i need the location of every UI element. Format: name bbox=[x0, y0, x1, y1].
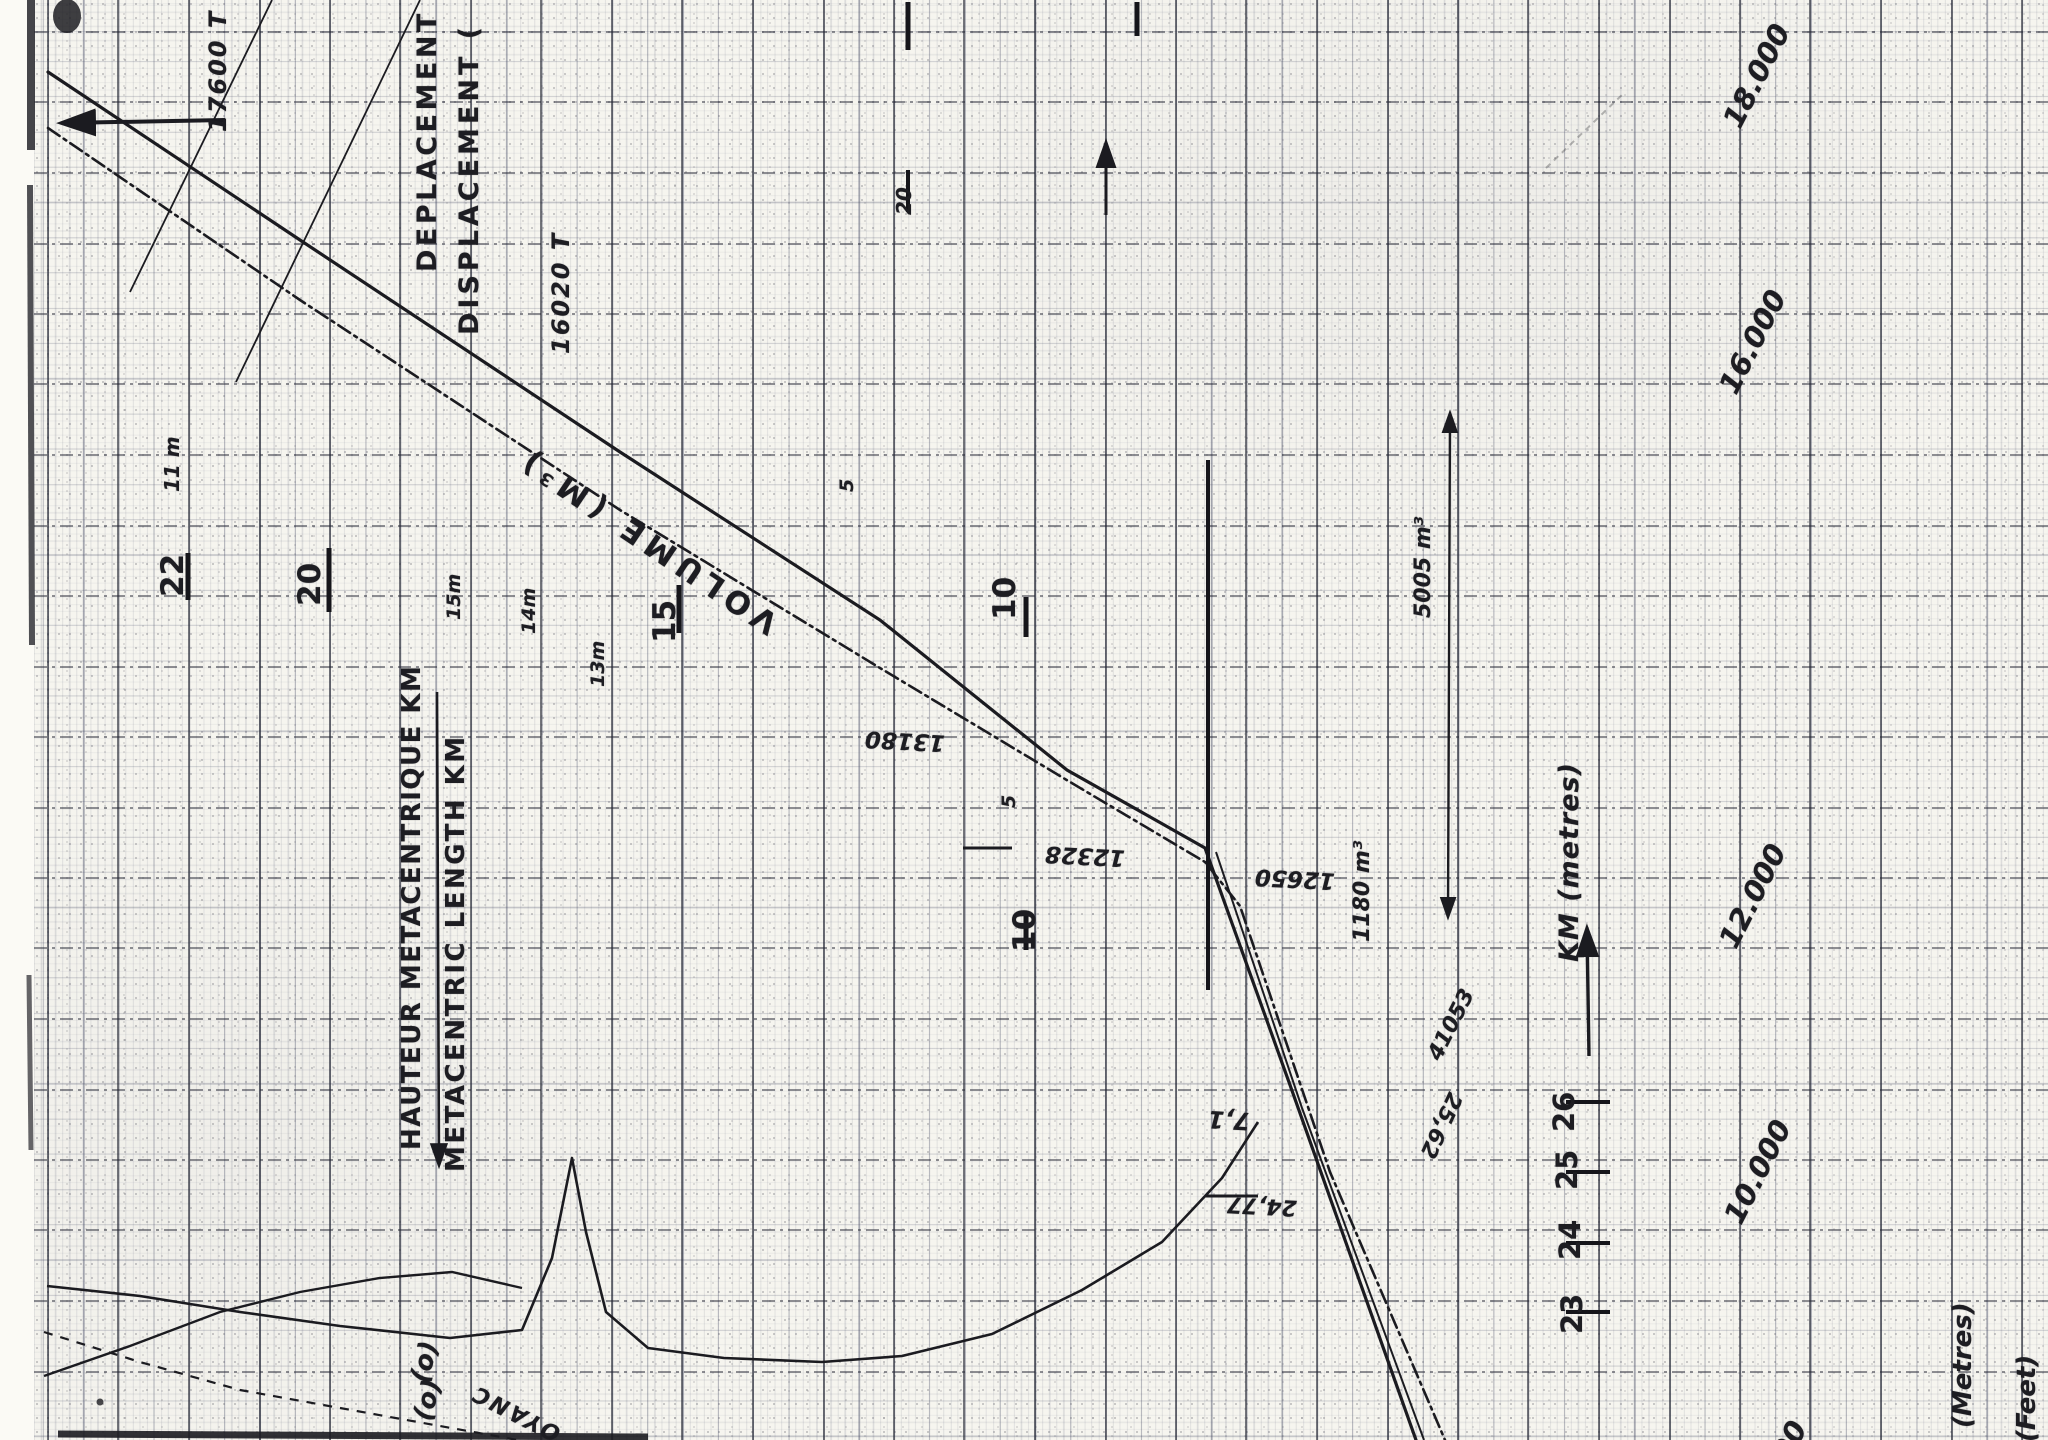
scanned-chart-canvas: DEPLACEMENT EN ( DISPLACEMENT ( VOLUME (… bbox=[0, 0, 2048, 1440]
annotation-12328: 12328 bbox=[1044, 841, 1125, 868]
aux-line-1 bbox=[130, 0, 272, 292]
faint-pencil-line bbox=[1546, 92, 1625, 168]
km-tick-26: 26 bbox=[1550, 1092, 1579, 1132]
annotation-13180: 13180 bbox=[864, 726, 945, 753]
km-tick-24: 24 bbox=[1556, 1220, 1585, 1260]
scan-edge-left-3 bbox=[29, 975, 31, 1150]
annotation-1180m3: 1180 m³ bbox=[1352, 841, 1374, 942]
annotation-11m: 11 m bbox=[162, 436, 182, 492]
metres-tick-10-lower: 10 bbox=[1010, 909, 1041, 952]
draft-mark-13m: 13m bbox=[589, 641, 608, 687]
annotation-7-1: 7,1 bbox=[1207, 1107, 1251, 1133]
dimension-arrow bbox=[1448, 414, 1450, 916]
annotation-12650: 12650 bbox=[1254, 864, 1335, 891]
draft-mark-14m: 14m bbox=[520, 588, 539, 634]
annotation-24-77: 24,77 bbox=[1227, 1192, 1298, 1218]
aux-line-2 bbox=[236, 0, 420, 382]
metres-tick-10: 10 bbox=[990, 577, 1021, 620]
annotation-5005m3: 5005 m³ bbox=[1413, 517, 1435, 618]
title-displacement-en: DISPLACEMENT ( bbox=[456, 23, 483, 335]
displacement-value-17600: 17600 T bbox=[206, 10, 230, 132]
scan-edge-left-2 bbox=[30, 185, 32, 645]
km-metres-axis-label: KM (metres) bbox=[1556, 762, 1583, 962]
metres-tick-15: 15 bbox=[650, 600, 681, 643]
metres-tick-20: 20 bbox=[295, 563, 326, 606]
km-tick-23: 23 bbox=[1558, 1294, 1587, 1334]
left-arrow bbox=[64, 120, 225, 123]
km-scale-arrow bbox=[1587, 930, 1589, 1056]
labels-down-arrow bbox=[437, 692, 439, 1164]
hauteur-metacentrique-label: HAUTEUR METACENTRIQUE KM bbox=[399, 665, 425, 1150]
grid-major-vertical bbox=[48, 0, 2022, 1440]
secondary-curve bbox=[44, 1272, 522, 1376]
scan-edge-bottom bbox=[58, 1434, 648, 1437]
displacement-line bbox=[48, 72, 1416, 1440]
km-tick-25: 25 bbox=[1553, 1150, 1582, 1190]
metres-tick-22: 22 bbox=[158, 554, 189, 597]
small-mark-20: 20 bbox=[894, 187, 914, 215]
scan-dot bbox=[97, 1399, 104, 1406]
km-metacentric-curve bbox=[47, 1122, 1258, 1362]
metres-unit-label: (Metres) bbox=[1950, 1302, 1976, 1428]
displacement-value-16020: 16020 T bbox=[549, 232, 573, 354]
small-mark-5b: 5 bbox=[1000, 795, 1019, 808]
scan-blob bbox=[53, 0, 81, 33]
feet-unit-label: (Feet) bbox=[2014, 1355, 2040, 1440]
small-mark-5a: 5 bbox=[838, 479, 857, 492]
draft-mark-15m: 15m bbox=[445, 574, 464, 620]
volume-line bbox=[48, 128, 1445, 1440]
metacentric-length-label: METACENTRIC LENGTH KM bbox=[443, 734, 469, 1172]
title-deplacement-fr: DEPLACEMENT EN ( bbox=[414, 0, 441, 272]
